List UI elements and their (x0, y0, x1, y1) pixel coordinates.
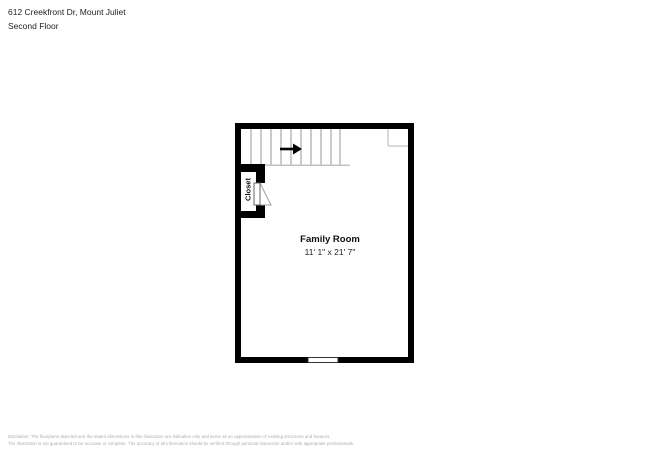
plan-header: 612 Creekfront Dr, Mount Juliet Second F… (8, 6, 126, 33)
closet-label: Closet (243, 178, 252, 201)
window-icon (308, 358, 338, 363)
room-name-label: Family Room (300, 234, 360, 245)
floorplan-drawing: Closet Family Room 11' 1" x 21' 7" (235, 123, 414, 363)
property-address: 612 Creekfront Dr, Mount Juliet (8, 6, 126, 20)
floorplan-page: 612 Creekfront Dr, Mount Juliet Second F… (0, 0, 650, 460)
disclaimer-line-2: The illustration is not guaranteed to be… (8, 440, 354, 447)
floor-label: Second Floor (8, 20, 126, 34)
disclaimer: Disclaimer: The floorplans depicted and … (8, 433, 354, 447)
floorplan-canvas: Closet Family Room 11' 1" x 21' 7" (235, 123, 414, 363)
room-dimensions-label: 11' 1" x 21' 7" (305, 247, 356, 257)
disclaimer-line-1: Disclaimer: The floorplans depicted and … (8, 433, 354, 440)
